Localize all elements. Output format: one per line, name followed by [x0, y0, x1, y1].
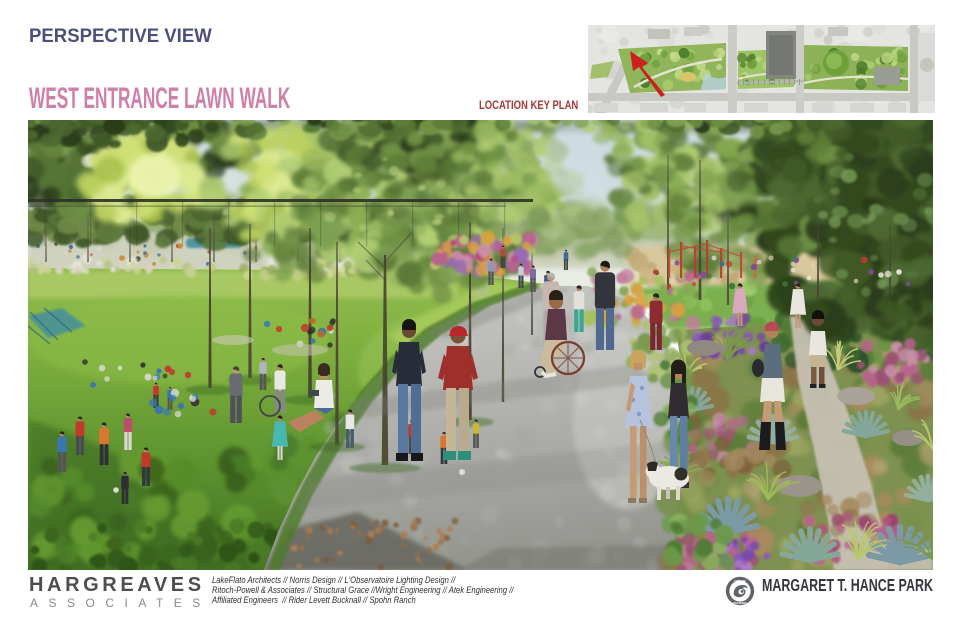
svg-text:CITY OF: CITY OF	[734, 579, 746, 583]
svg-text:PHOENIX: PHOENIX	[733, 601, 747, 605]
